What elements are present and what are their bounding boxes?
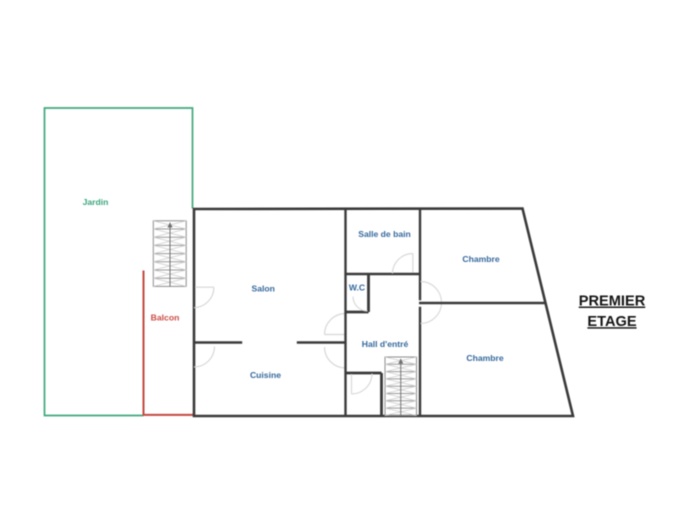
svg-text:ETAGE: ETAGE [587,314,636,330]
svg-text:Salon: Salon [251,284,274,294]
svg-text:Chambre: Chambre [466,353,503,363]
svg-text:Cuisine: Cuisine [250,370,281,380]
svg-text:Balcon: Balcon [151,312,180,322]
svg-text:Chambre: Chambre [462,254,499,264]
svg-text:Jardin: Jardin [83,197,109,207]
svg-text:Hall d'entré: Hall d'entré [362,339,409,349]
svg-text:W.C: W.C [349,283,365,293]
svg-text:PREMIER: PREMIER [579,294,646,310]
svg-text:Salle de bain: Salle de bain [358,229,411,239]
